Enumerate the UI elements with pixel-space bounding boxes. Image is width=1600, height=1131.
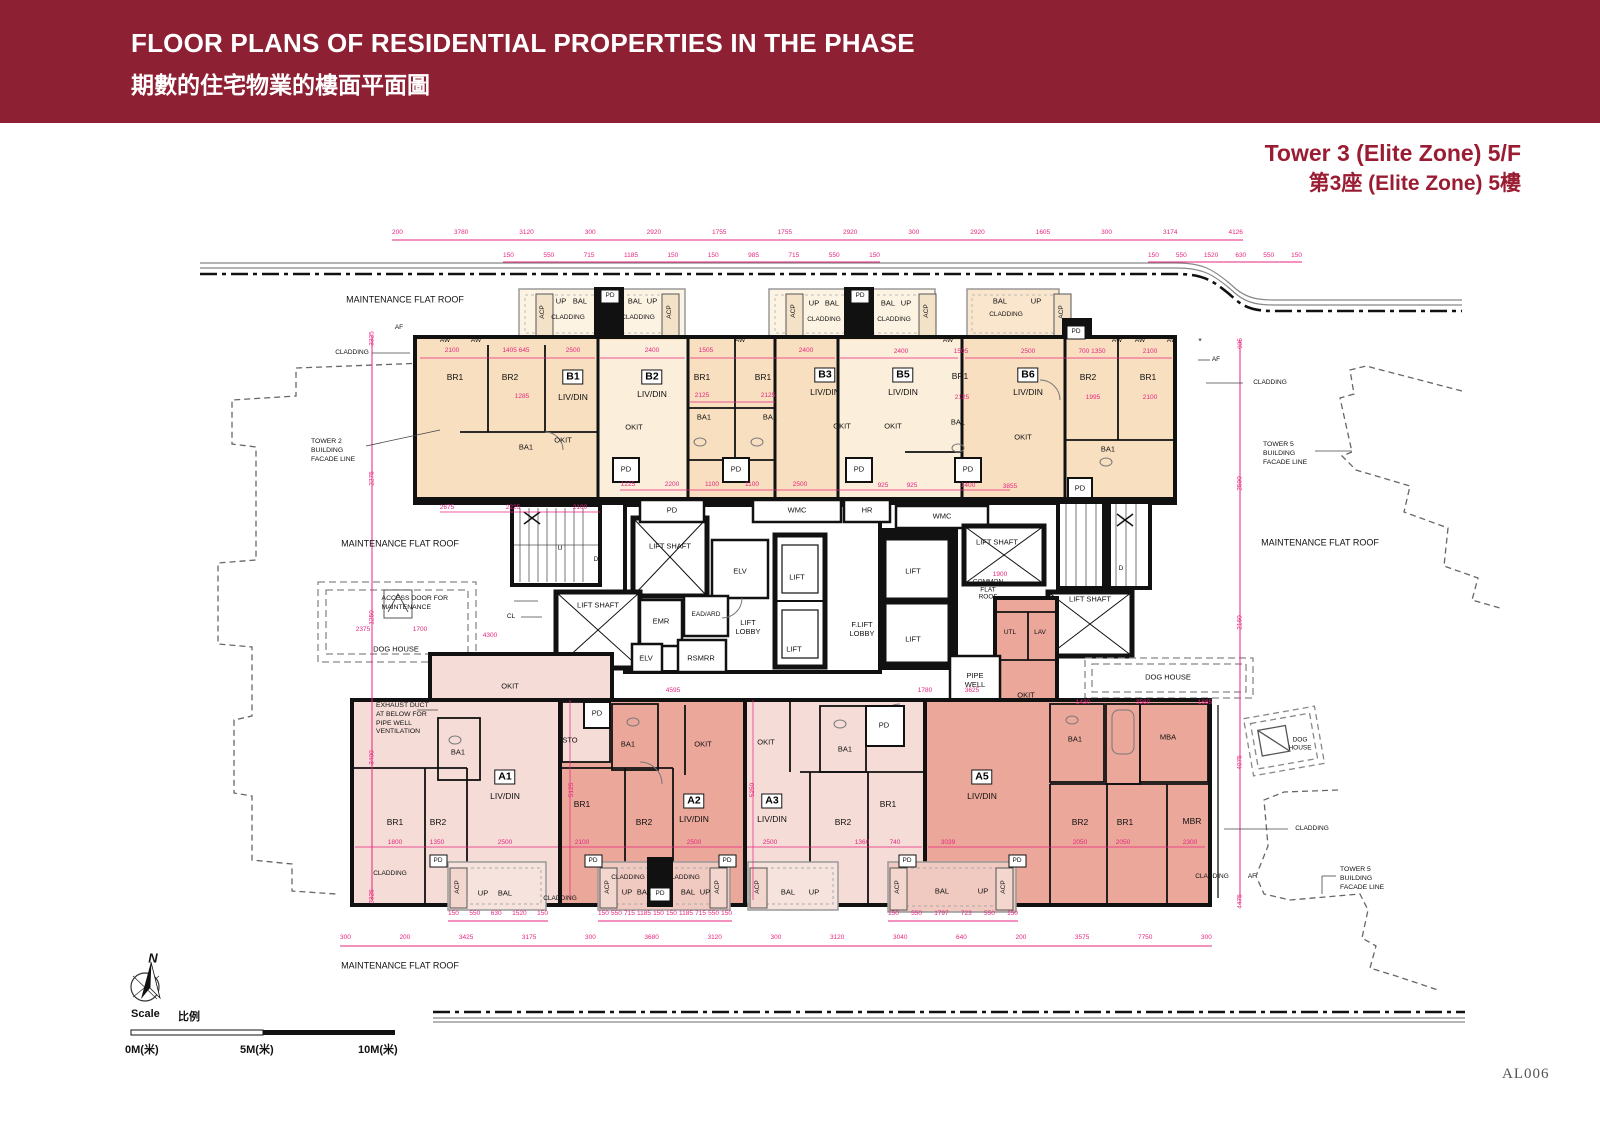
unit-label-a1: A1 (494, 770, 515, 785)
dim-value: 1505 (699, 347, 713, 355)
room-label-lift-shaft: LIFT SHAFT (649, 543, 691, 552)
room-label-ba1: BA1 (1101, 446, 1115, 455)
up-label: UP (556, 298, 566, 307)
site-boundary-bottom (433, 1012, 1465, 1022)
unit-label-a5: A5 (971, 770, 992, 785)
room-label-ba1: BA1 (763, 414, 777, 423)
stair-up-label: U (1102, 552, 1107, 560)
dim-value: 1225 (621, 481, 635, 489)
dim-value: 2125 (695, 392, 709, 400)
star-marker: * (1198, 336, 1201, 346)
aw-label: AW (1167, 337, 1177, 345)
room-label-lift: LIFT (786, 646, 801, 655)
bal-label: BAL (573, 298, 587, 307)
dim-value: 2500 (566, 347, 580, 355)
pd-label: PD (621, 466, 631, 475)
dim-value: 3855 (1003, 483, 1017, 491)
unit-label-b2: B2 (641, 370, 662, 385)
unit-label-b3: B3 (814, 368, 835, 383)
dim-value: 2400 (799, 347, 813, 355)
room-label-wmc: WMC (788, 507, 807, 516)
scale-label-en: Scale (131, 1008, 160, 1020)
dim-value: 1995 (1086, 394, 1100, 402)
dim-value: 1505 (954, 348, 968, 356)
up-label: UP (809, 300, 819, 309)
bal-label: BAL (637, 889, 651, 898)
dim-value: 1100 (705, 481, 719, 489)
dim-chain-bottom-main: 3002003425317530036803120300312030406402… (340, 934, 1212, 941)
pd-label: PD (855, 292, 864, 300)
room-label-okit: OKIT (625, 424, 643, 433)
room-label-livdin: LIV/DIN (810, 387, 840, 397)
cladding-right: CLADDING (1253, 379, 1287, 387)
dog-house-right-label: DOG HOUSE (1145, 674, 1191, 683)
cl-label: CL (507, 613, 515, 621)
stair-down-label: D (1119, 565, 1124, 573)
bal-label: BAL (628, 298, 642, 307)
cladding-bottom-a2l: CLADDING (611, 874, 645, 882)
aw-label: AW (735, 337, 745, 345)
dog-house-far-right-label: DOG HOUSE (1288, 736, 1311, 751)
acp-label: ACP (604, 880, 612, 893)
dim-value: 1405 645 (502, 347, 529, 355)
room-label-livdin: LIV/DIN (757, 814, 787, 824)
unit-label-a2: A2 (683, 794, 704, 809)
dim-value: 1350 (430, 839, 444, 847)
dim-value: 1700 (413, 626, 427, 634)
dim-value: 2125 (761, 392, 775, 400)
scale-tick-0: 0M(米) (125, 1041, 159, 1057)
cladding-bottom-right: CLADDING (1195, 873, 1229, 881)
dim-value: 2300 (1183, 839, 1197, 847)
bal-label: BAL (935, 888, 949, 897)
tower5-facade-label-top: TOWER 5 BUILDING FACADE LINE (1263, 441, 1307, 467)
dim-value: 2400 (645, 347, 659, 355)
dog-house-far-right (1244, 706, 1325, 776)
room-label-lift-lobby: LIFT LOBBY (735, 619, 760, 637)
aw-label: AW (1112, 337, 1122, 345)
acp-label: ACP (1000, 880, 1008, 893)
unit-label-a3: A3 (761, 794, 782, 809)
dim-value: 740 (890, 839, 901, 847)
scale-label-zh: 比例 (178, 1008, 200, 1024)
pd-label: PD (854, 466, 864, 475)
compass (131, 962, 160, 1001)
room-label-br1: BR1 (755, 372, 772, 382)
room-label-okit: OKIT (554, 437, 572, 446)
bal-label: BAL (681, 889, 695, 898)
dim-value: 1800 (388, 839, 402, 847)
room-label-br2: BR2 (1080, 372, 1097, 382)
acp-label: ACP (1058, 305, 1066, 318)
dim-value: 2100 (575, 839, 589, 847)
dim-value: 1400 (961, 482, 975, 490)
acp-label: ACP (894, 880, 902, 893)
room-label-mba: MBA (1160, 734, 1176, 743)
room-label-lift: LIFT (905, 568, 920, 577)
pd-label: PD (722, 857, 731, 865)
dim-chain-balcony-a2: 15055071511851501501185715550150 (598, 910, 732, 917)
room-label-livdin: LIV/DIN (679, 814, 709, 824)
dim-value: 1100 (745, 481, 759, 489)
dim-chain-left-vertical: 33252275125034003325 (362, 335, 382, 900)
room-label-okit: OKIT (694, 741, 712, 750)
floor-plan-area: MAINTENANCE FLAT ROOF MAINTENANCE FLAT R… (0, 0, 1600, 1131)
room-label-elv: ELV (639, 655, 653, 664)
tower2-facade-label: TOWER 2 BUILDING FACADE LINE (311, 438, 355, 464)
dim-value: 5125 (568, 783, 576, 797)
room-label-br1: BR1 (952, 371, 969, 381)
dim-value: 1285 (515, 393, 529, 401)
pd-label: PD (655, 890, 664, 898)
dim-value: 1430 (1076, 699, 1090, 707)
dim-value: 1685 (1198, 699, 1212, 707)
maintenance-flat-roof-left: MAINTENANCE FLAT ROOF (341, 539, 459, 550)
dim-chain-top-main: 2003780312030029201755175529203002920160… (392, 229, 1243, 236)
maintenance-flat-roof-bottom: MAINTENANCE FLAT ROOF (341, 961, 459, 972)
room-label-ba1: BA1 (1068, 736, 1082, 745)
dim-chain-balcony-a1: 1505506301520150 (448, 910, 548, 917)
dim-value: 2050 (1116, 839, 1130, 847)
up-label: UP (978, 888, 988, 897)
room-label-emr: EMR (653, 618, 670, 627)
dim-value: 2500 (763, 839, 777, 847)
dim-value: 2225 (506, 504, 520, 512)
pd-label: PD (588, 857, 597, 865)
maintenance-flat-roof-top: MAINTENANCE FLAT ROOF (346, 295, 464, 306)
room-label-br2: BR2 (430, 817, 447, 827)
room-label-livdin: LIV/DIN (1013, 387, 1043, 397)
aw-label: AW (1135, 337, 1145, 345)
cladding-mbr: CLADDING (1295, 825, 1329, 833)
room-label-okit: OKIT (1014, 434, 1032, 443)
room-label-br1: BR1 (694, 372, 711, 382)
pd-label: PD (1012, 857, 1021, 865)
cladding-balcony: CLADDING (551, 314, 585, 322)
dim-value: 2125 (955, 394, 969, 402)
dim-value: 1360 (855, 839, 869, 847)
room-label-sto: STO (562, 737, 577, 746)
sheet-number: AL006 (1502, 1066, 1550, 1083)
dim-value: 2050 (1073, 839, 1087, 847)
dim-value: 3560 (1136, 699, 1150, 707)
dim-chain-right-vertical: 9352590216040754475 (1230, 340, 1250, 905)
aw-label: AW (471, 337, 481, 345)
dim-value: 2500 (793, 481, 807, 489)
up-label: UP (647, 298, 657, 307)
pd-label: PD (879, 722, 889, 731)
room-label-br1: BR1 (1140, 372, 1157, 382)
room-label-rsmrr: RSMRR (687, 655, 715, 664)
dim-value: 2400 (894, 348, 908, 356)
dim-value: 1900 (993, 571, 1007, 579)
dim-value: 2375 (356, 626, 370, 634)
room-label-livdin: LIV/DIN (490, 791, 520, 801)
af-top-right: AF (1212, 356, 1220, 364)
cladding-bottom-a2r: CLADDING (666, 874, 700, 882)
tower5-facade-label-bottom: TOWER 5 BUILDING FACADE LINE (1340, 866, 1384, 892)
room-label-lav: LAV (1034, 629, 1046, 637)
room-label-br1: BR1 (447, 372, 464, 382)
acp-label: ACP (714, 880, 722, 893)
scale-tick-5: 5M(米) (240, 1041, 274, 1057)
room-label-livdin: LIV/DIN (967, 791, 997, 801)
tower5-facade-line-top (1340, 366, 1500, 608)
room-label-f-lift-lobby: F.LIFT LOBBY (849, 621, 874, 639)
room-label-okit: OKIT (833, 423, 851, 432)
up-label: UP (478, 890, 488, 899)
maintenance-flat-roof-right: MAINTENANCE FLAT ROOF (1261, 538, 1379, 549)
room-label-br2: BR2 (835, 817, 852, 827)
room-label-lift-shaft: LIFT SHAFT (976, 539, 1018, 548)
stair-up-label: U (558, 545, 563, 553)
room-label-br1: BR1 (880, 799, 897, 809)
dim-value: 2100 (573, 504, 587, 512)
cladding-balcony: CLADDING (807, 316, 841, 324)
compass-north-label: N (148, 950, 157, 965)
room-label-okit: OKIT (884, 423, 902, 432)
pd-label: PD (667, 507, 677, 516)
cladding-balcony: CLADDING (621, 314, 655, 322)
dim-chain-top-right-sub: 1505501520630550150 (1148, 252, 1302, 259)
acp-label: ACP (754, 880, 762, 893)
room-label-livdin: LIV/DIN (558, 392, 588, 402)
room-label-livdin: LIV/DIN (637, 389, 667, 399)
unit-label-b6: B6 (1017, 368, 1038, 383)
access-door-label: ACCESS DOOR FOR MAINTENANCE (382, 595, 448, 613)
dim-value: 2200 (665, 481, 679, 489)
floor-plan-drawing (0, 0, 1600, 1131)
aw-label: AW (943, 337, 953, 345)
room-label-lift-shaft: LIFT SHAFT (577, 602, 619, 611)
dim-chain-top-sub: 1505507151185150150985715550150 (503, 252, 880, 259)
dim-value: 5250 (749, 783, 757, 797)
room-label-ba1: BA1 (838, 746, 852, 755)
room-label-ba1: BA1 (697, 414, 711, 423)
cladding-bottom-a1: CLADDING (543, 895, 577, 903)
up-label: UP (809, 889, 819, 898)
lower-units-block (352, 654, 1218, 912)
pd-label: PD (592, 710, 602, 719)
room-label-elv: ELV (733, 568, 747, 577)
room-label-okit: OKIT (501, 683, 519, 692)
acp-label: ACP (539, 305, 547, 318)
room-label-br1: BR1 (387, 817, 404, 827)
dim-value: 2500 (1021, 348, 1035, 356)
dim-value: 2100 (1143, 348, 1157, 356)
bal-label: BAL (881, 300, 895, 309)
dim-value: 4595 (666, 687, 680, 695)
bal-label: BAL (498, 890, 512, 899)
acp-label: ACP (454, 880, 462, 893)
scale-bar (131, 1030, 395, 1035)
dim-value: 700 1350 (1078, 348, 1105, 356)
room-label-hr: HR (862, 507, 873, 516)
dim-chain-balcony-a5: 1505501797723550150 (888, 910, 1018, 917)
room-label-br2: BR2 (1072, 817, 1089, 827)
dim-value: 1780 (918, 687, 932, 695)
room-label-ba1: BA1 (451, 749, 465, 758)
unit-label-b5: B5 (892, 368, 913, 383)
bal-label: BAL (825, 300, 839, 309)
unit-label-b1: B1 (562, 370, 583, 385)
room-label-ba1: BA1 (519, 444, 533, 453)
up-label: UP (1031, 298, 1041, 307)
room-label-utl: UTL (1004, 629, 1016, 637)
acp-label: ACP (923, 304, 931, 317)
pd-label: PD (433, 857, 442, 865)
dim-value: 2500 (498, 839, 512, 847)
common-flat-roof-label: COMMON FLAT ROOF (973, 579, 1003, 602)
pd-label: PD (731, 466, 741, 475)
dim-value: 925 (907, 482, 918, 490)
room-label-okit: OKIT (757, 739, 775, 748)
aw-label: AW (440, 337, 450, 345)
af-top-left: AF (395, 324, 403, 332)
dim-value: 2500 (687, 839, 701, 847)
room-label-livdin: LIV/DIN (888, 387, 918, 397)
room-label-br1: BR1 (1117, 817, 1134, 827)
acp-label: ACP (666, 305, 674, 318)
room-label-ead-ard: EAD/ARD (692, 611, 721, 619)
up-label: UP (901, 300, 911, 309)
room-label-lift: LIFT (789, 574, 804, 583)
cladding-balcony: CLADDING (989, 311, 1023, 319)
pd-label: PD (1071, 328, 1080, 336)
stair-down-label: D (594, 556, 599, 564)
dim-value: 3039 (941, 839, 955, 847)
exhaust-duct-label: EXHAUST DUCT AT BELOW FOR PIPE WELL VENT… (376, 702, 429, 737)
room-label-br2: BR2 (636, 817, 653, 827)
room-label-br1: BR1 (574, 799, 591, 809)
cladding-balcony: CLADDING (877, 316, 911, 324)
room-label-lift-shaft: LIFT SHAFT (1069, 596, 1111, 605)
bal-label: BAL (781, 889, 795, 898)
up-label: UP (622, 889, 632, 898)
bal-label: BAL (993, 298, 1007, 307)
dim-value: 2675 (440, 504, 454, 512)
dim-value: 925 (878, 482, 889, 490)
room-label-ba1: BA1 (621, 741, 635, 750)
room-label-wmc: WMC (933, 513, 952, 522)
pd-label: PD (1075, 485, 1085, 494)
up-label: UP (700, 889, 710, 898)
room-label-lift: LIFT (905, 636, 920, 645)
acp-label: ACP (790, 304, 798, 317)
dim-value: 4300 (483, 632, 497, 640)
dim-value: 2100 (445, 347, 459, 355)
room-label-okit: OKIT (1017, 692, 1035, 701)
room-label-ba1: BA1 (951, 419, 965, 428)
pd-label: PD (605, 292, 614, 300)
dim-value: 3625 (965, 687, 979, 695)
pd-label: PD (963, 466, 973, 475)
room-label-br2: BR2 (502, 372, 519, 382)
scale-tick-10: 10M(米) (358, 1041, 398, 1057)
room-label-mbr: MBR (1183, 816, 1202, 826)
pd-label: PD (902, 857, 911, 865)
dim-value: 2100 (1143, 394, 1157, 402)
